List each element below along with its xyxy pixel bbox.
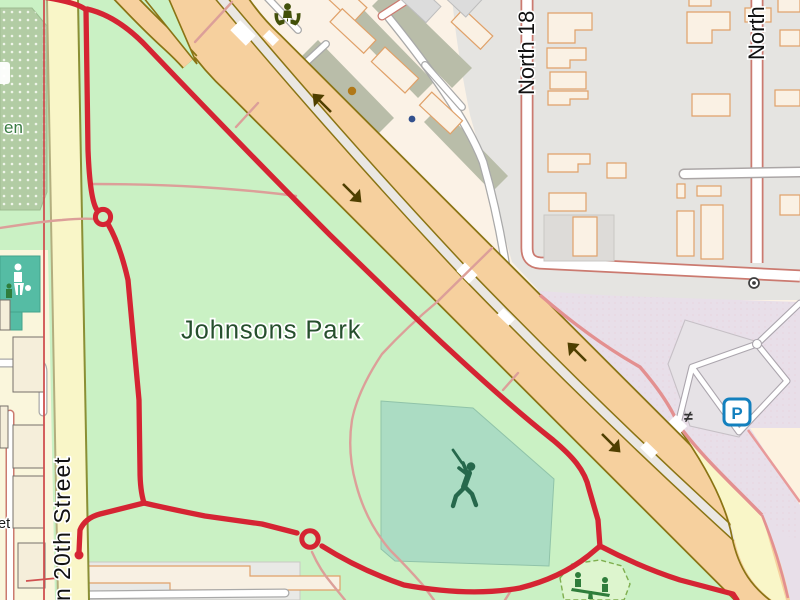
svg-text:n 20th Street: n 20th Street <box>49 456 75 600</box>
svg-text:Johnsons Park: Johnsons Park <box>181 317 361 345</box>
svg-text:≠: ≠ <box>684 409 693 426</box>
svg-text:P: P <box>731 404 742 423</box>
svg-text:et: et <box>0 516 10 532</box>
svg-text:North 18: North 18 <box>514 11 539 95</box>
svg-text:North: North <box>744 6 769 60</box>
svg-text:en: en <box>4 118 23 137</box>
